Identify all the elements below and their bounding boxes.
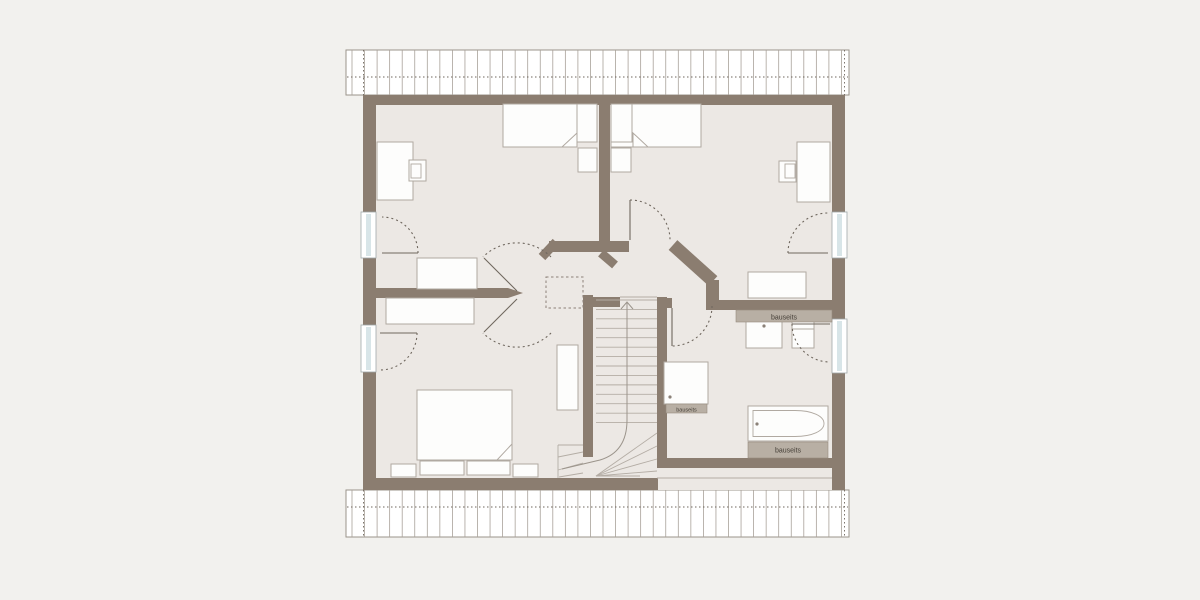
exterior-wall-left: [363, 258, 376, 326]
nightstand-bed-right: [513, 464, 538, 477]
bathtub: [748, 406, 828, 441]
exterior-wall-right: [832, 95, 845, 213]
nightstand-topleft: [578, 148, 597, 172]
wall-between-bedrooms: [599, 104, 610, 241]
bathtub-faucet-dot: [755, 422, 758, 425]
nightstand-topright: [611, 148, 631, 172]
stairwell-top-jamb: [593, 297, 620, 307]
nightstand-bed-left: [391, 464, 416, 477]
bathtub-label: bauseits: [775, 448, 802, 455]
roof-overhang-bottom: [346, 490, 849, 537]
bed-topleft: [503, 104, 577, 147]
desk-topright: [797, 142, 830, 202]
desk-topleft: [377, 142, 413, 200]
double-bed-pillow-left: [420, 461, 464, 475]
exterior-wall-top: [363, 95, 845, 105]
exterior-wall-left: [363, 372, 376, 490]
floor-plan-canvas: bauseits bauseits bauseits: [0, 0, 1200, 600]
exterior-wall-left: [363, 95, 376, 213]
exterior-wall-bottom: [363, 478, 658, 490]
toilet: [792, 321, 814, 348]
bathroom-top-wall: [706, 300, 832, 310]
exterior-wall-right: [832, 373, 845, 490]
wardrobe-middle-upper: [417, 258, 477, 289]
sink-faucet-dot: [762, 324, 765, 327]
bathroom-door-jamb: [657, 298, 672, 308]
double-bed: [417, 390, 512, 460]
wardrobe-bottomleft: [557, 345, 578, 410]
bathroom-bottom-wall: [657, 458, 832, 468]
shower-faucet-dot: [668, 395, 671, 398]
exterior-wall-right: [832, 258, 845, 320]
bed-topleft-pillow: [577, 104, 597, 142]
wardrobe-middle-lower: [386, 298, 474, 324]
vanity-counter-label: bauseits: [771, 315, 798, 322]
shower-label: bauseits: [676, 408, 697, 414]
hall-top-wall: [549, 241, 629, 252]
sideboard-topright: [748, 272, 806, 298]
floor-plan: bauseits bauseits bauseits: [0, 0, 1200, 600]
bed-topright-pillow: [611, 104, 632, 142]
stairwell-left-wall: [583, 295, 593, 457]
double-bed-pillow-right: [467, 461, 510, 475]
roof-overhang-top: [346, 50, 849, 95]
